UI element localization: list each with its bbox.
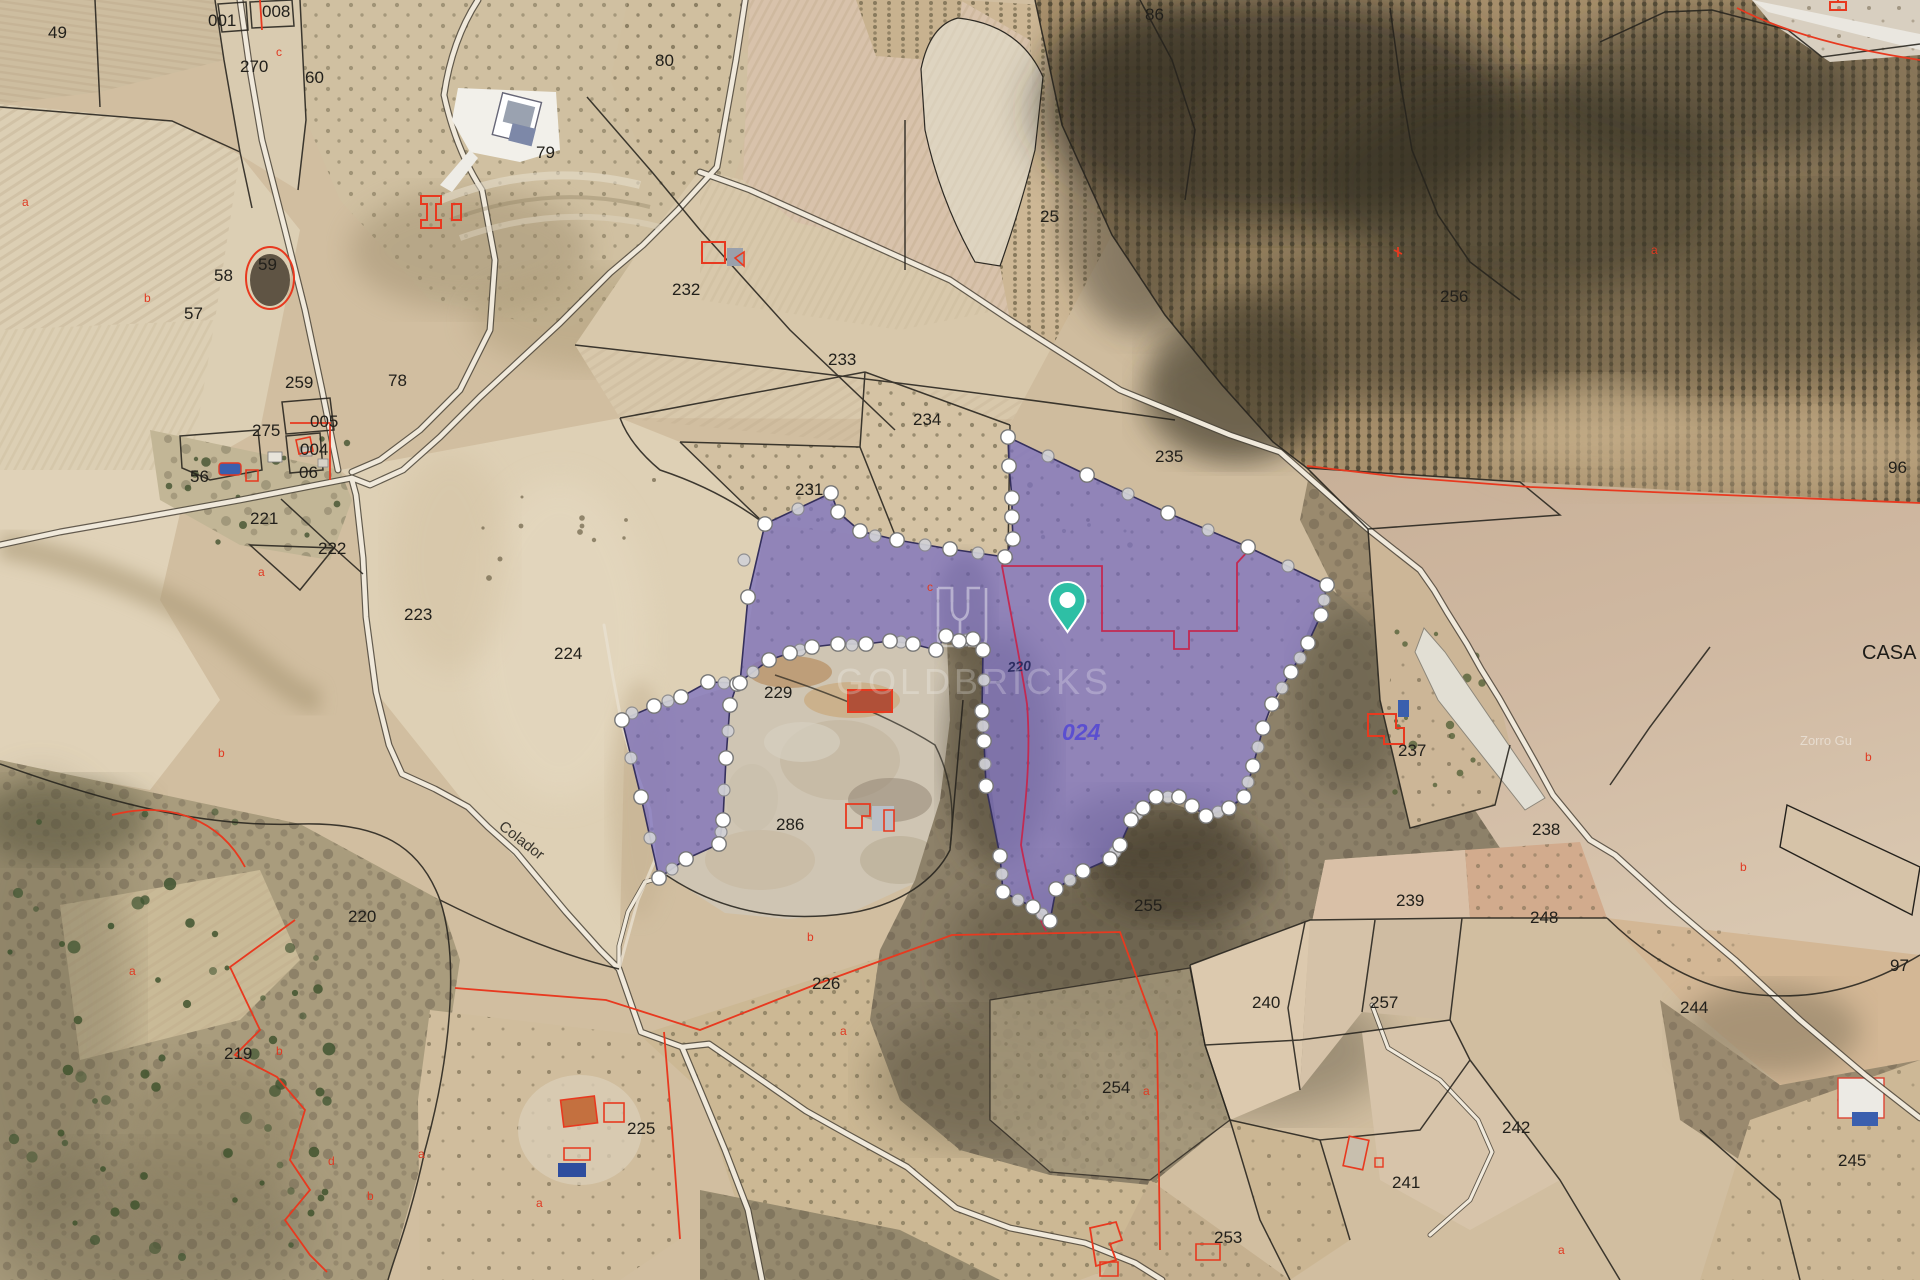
- svg-text:c: c: [927, 580, 933, 594]
- svg-text:a: a: [840, 1024, 847, 1038]
- svg-text:005: 005: [310, 412, 338, 431]
- svg-text:a: a: [536, 1196, 543, 1210]
- svg-text:238: 238: [1532, 820, 1560, 839]
- svg-text:008: 008: [262, 2, 290, 21]
- svg-text:80: 80: [655, 51, 674, 70]
- svg-text:235: 235: [1155, 447, 1183, 466]
- svg-text:257: 257: [1370, 993, 1398, 1012]
- svg-text:a: a: [418, 1147, 425, 1161]
- svg-text:a: a: [1558, 1243, 1565, 1257]
- svg-text:Zorro Gu: Zorro Gu: [1800, 733, 1852, 748]
- svg-text:237: 237: [1398, 741, 1426, 760]
- svg-text:004: 004: [300, 440, 328, 459]
- svg-text:024: 024: [1062, 719, 1101, 745]
- svg-text:245: 245: [1838, 1151, 1866, 1170]
- svg-text:b: b: [1740, 860, 1747, 874]
- svg-text:255: 255: [1134, 896, 1162, 915]
- svg-text:233: 233: [828, 350, 856, 369]
- svg-text:c: c: [276, 45, 282, 59]
- svg-text:225: 225: [627, 1119, 655, 1138]
- svg-text:b: b: [367, 1189, 374, 1203]
- svg-text:a: a: [258, 565, 265, 579]
- svg-text:56: 56: [190, 467, 209, 486]
- svg-text:253: 253: [1214, 1228, 1242, 1247]
- svg-text:b: b: [1865, 750, 1872, 764]
- svg-text:234: 234: [913, 410, 941, 429]
- svg-text:231: 231: [795, 480, 823, 499]
- svg-text:GOLDBRICKS: GOLDBRICKS: [836, 661, 1112, 702]
- svg-text:b: b: [144, 291, 151, 305]
- svg-text:232: 232: [672, 280, 700, 299]
- svg-text:a: a: [1651, 243, 1658, 257]
- svg-text:219: 219: [224, 1044, 252, 1063]
- svg-text:d: d: [328, 1154, 335, 1168]
- svg-text:06: 06: [299, 463, 318, 482]
- svg-text:270: 270: [240, 57, 268, 76]
- svg-text:CASA: CASA: [1862, 642, 1917, 664]
- svg-text:86: 86: [1145, 5, 1164, 24]
- svg-text:259: 259: [285, 373, 313, 392]
- svg-text:242: 242: [1502, 1118, 1530, 1137]
- svg-text:96: 96: [1888, 458, 1907, 477]
- svg-text:a: a: [1143, 1084, 1150, 1098]
- svg-text:b: b: [807, 930, 814, 944]
- svg-text:221: 221: [250, 509, 278, 528]
- svg-text:b: b: [276, 1044, 283, 1058]
- svg-text:a: a: [22, 195, 29, 209]
- svg-text:57: 57: [184, 304, 203, 323]
- svg-text:254: 254: [1102, 1078, 1130, 1097]
- svg-text:49: 49: [48, 23, 67, 42]
- svg-text:239: 239: [1396, 891, 1424, 910]
- svg-text:223: 223: [404, 605, 432, 624]
- svg-text:25: 25: [1040, 207, 1059, 226]
- svg-text:220: 220: [348, 907, 376, 926]
- svg-text:97: 97: [1890, 956, 1909, 975]
- svg-text:248: 248: [1530, 908, 1558, 927]
- svg-text:286: 286: [776, 815, 804, 834]
- svg-text:226: 226: [812, 974, 840, 993]
- svg-text:58: 58: [214, 266, 233, 285]
- svg-text:275: 275: [252, 421, 280, 440]
- svg-text:240: 240: [1252, 993, 1280, 1012]
- svg-text:60: 60: [305, 68, 324, 87]
- svg-text:241: 241: [1392, 1173, 1420, 1192]
- svg-text:222: 222: [318, 539, 346, 558]
- svg-text:256: 256: [1440, 287, 1468, 306]
- svg-text:78: 78: [388, 371, 407, 390]
- svg-text:229: 229: [764, 683, 792, 702]
- svg-text:224: 224: [554, 644, 582, 663]
- svg-text:b: b: [218, 746, 225, 760]
- svg-text:a: a: [129, 964, 136, 978]
- svg-text:59: 59: [258, 255, 277, 274]
- svg-text:79: 79: [536, 143, 555, 162]
- svg-text:001: 001: [208, 11, 236, 30]
- svg-text:244: 244: [1680, 998, 1708, 1017]
